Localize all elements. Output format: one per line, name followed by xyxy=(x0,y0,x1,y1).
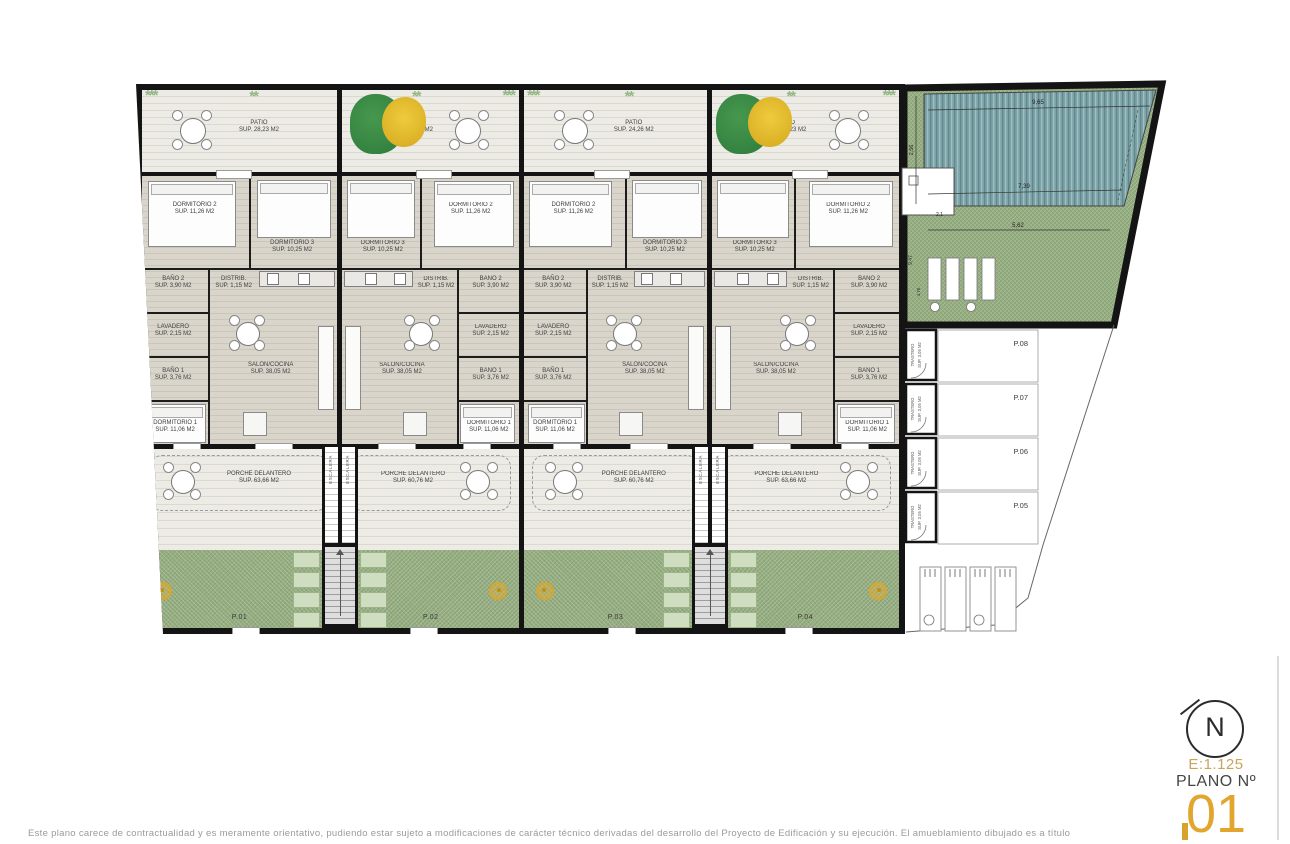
bano1-label: BAÑO 1SUP. 3,76 M2 xyxy=(524,368,583,381)
kitchen-hob-icon xyxy=(737,273,749,285)
dormitorio1-label: DORMITORIO 1SUP. 11,06 M2 xyxy=(524,420,586,433)
parasol-icon xyxy=(931,303,940,312)
lavadero-label: LAVADEROSUP. 2,15 M2 xyxy=(462,324,519,337)
disclaimer-text: Este plano carece de contractualidad y e… xyxy=(28,828,1158,839)
dormitorio1-label: DORMITORIO 1SUP. 11,06 M2 xyxy=(142,420,208,433)
plot-label: P.07 xyxy=(1014,393,1028,402)
rooms-zone: DORMITORIO 2SUP. 11,26 M2 DORMITORIO 3SU… xyxy=(342,176,519,444)
lavadero-label: LAVADEROSUP. 2,15 M2 xyxy=(524,324,583,337)
palm-plant-icon: *** xyxy=(145,91,157,101)
patio-door-opening xyxy=(416,170,452,179)
gate-opening xyxy=(410,627,438,638)
planter-icon xyxy=(293,612,320,628)
wall-segment xyxy=(142,356,208,358)
wall-segment xyxy=(420,176,422,268)
gold-accent-bar xyxy=(1182,823,1188,840)
wall-segment xyxy=(524,356,586,358)
dormitorio3-label: DORMITORIO 3SUP. 10,25 M2 xyxy=(626,240,703,253)
swimming-pool xyxy=(924,90,1156,206)
kitchen-sink-icon xyxy=(267,273,279,285)
salon-label: SALON/COCINASUP. 38,05 M2 xyxy=(590,362,700,375)
dining-table-icon xyxy=(779,314,817,352)
rooms-zone: DORMITORIO 2SUP. 11,26 M2 DORMITORIO 3SU… xyxy=(524,176,707,444)
plot-label: P.06 xyxy=(1014,447,1028,456)
bed-icon xyxy=(347,180,414,238)
dim-label: 5,62 xyxy=(1012,223,1024,229)
bano1-label: BAÑO 1SUP. 3,76 M2 xyxy=(462,368,519,381)
palm-plant-icon: ** xyxy=(625,92,633,102)
gate-opening xyxy=(785,627,813,638)
planter-icon xyxy=(360,572,387,588)
dormitorio2-label: DORMITORIO 2SUP. 11,26 M2 xyxy=(427,202,516,215)
rooms-zone: DORMITORIO 2SUP. 11,26 M2 DORMITORIO 3SU… xyxy=(142,176,337,444)
dormitorio2-label: DORMITORIO 2SUP. 11,26 M2 xyxy=(528,202,620,215)
parking-spaces xyxy=(920,567,1016,631)
unit: *** ** PATIOSUP. 24,26 M2 DORMITORIO 2SU xyxy=(524,90,707,628)
distrib-label: DISTRIB.SUP. 1,15 M2 xyxy=(413,276,459,289)
pool-garden-zone: 9,65 7,39 5,62 2,56 2,1 9,47 4,76 TRASTE… xyxy=(900,80,1180,640)
parasol-icon xyxy=(967,303,976,312)
stairs-icon xyxy=(695,547,725,624)
wall-segment xyxy=(835,312,899,314)
planter-icon xyxy=(663,552,690,568)
planter-icon xyxy=(360,592,387,608)
porche-table-icon xyxy=(459,461,499,501)
dim-label: 9,47 xyxy=(908,255,914,265)
patio-label: PATIOSUP. 24,26 M2 xyxy=(586,120,681,133)
bed-icon xyxy=(257,180,331,238)
dormitorio2-label: DORMITORIO 2SUP. 11,26 M2 xyxy=(802,202,896,215)
porche-table-icon xyxy=(839,461,879,501)
dim-label: 2,56 xyxy=(909,145,915,156)
wall-segment xyxy=(835,400,899,402)
porche-label: PORCHE DELANTEROSUP. 63,66 M2 xyxy=(738,471,835,484)
light-marker-icon xyxy=(869,582,887,600)
trastero-plots xyxy=(906,330,1038,544)
plot-label: P.05 xyxy=(1014,501,1028,510)
distrib-label: DISTRIB.SUP. 1,15 M2 xyxy=(208,276,259,289)
dormitorio2-label: DORMITORIO 2SUP. 11,26 M2 xyxy=(146,202,244,215)
wall-segment xyxy=(794,176,796,268)
distrib-label: DISTRIB.SUP. 1,15 M2 xyxy=(787,276,836,289)
planter-row xyxy=(293,552,320,632)
porche-zone: PORCHE DELANTEROSUP. 60,76 M2 xyxy=(524,449,707,550)
porche-table-icon xyxy=(544,461,584,501)
patio-zone: *** ** PATIOSUP. 28,23 M2 xyxy=(142,90,337,172)
planter-icon xyxy=(730,592,757,608)
stair-corridor: ESCALERA ESCALERA xyxy=(692,444,728,628)
bano1-label: BAÑO 1SUP. 3,76 M2 xyxy=(839,368,899,381)
gate-opening xyxy=(608,627,636,638)
bano1-label: BAÑO 1SUP. 3,76 M2 xyxy=(142,368,204,381)
porche-table-icon xyxy=(162,461,202,501)
palm-plant-icon: ** xyxy=(249,92,257,102)
coffee-table-icon xyxy=(778,412,802,436)
porche-label: PORCHE DELANTEROSUP. 60,76 M2 xyxy=(367,471,459,484)
escalera-shaft: ESCALERA xyxy=(325,447,338,543)
planter-icon xyxy=(360,552,387,568)
porche-label: PORCHE DELANTEROSUP. 60,76 M2 xyxy=(586,471,681,484)
unit: *** ** PATIOSUP. 24,26 M2 DORMITORIO 2SU xyxy=(342,90,519,628)
bed-icon xyxy=(632,180,702,238)
lavadero-label: LAVADEROSUP. 2,15 M2 xyxy=(839,324,899,337)
light-marker-icon xyxy=(489,582,507,600)
unit-id-label: P.01 xyxy=(191,614,289,621)
dormitorio3-label: DORMITORIO 3SUP. 10,25 M2 xyxy=(251,240,333,253)
north-letter: N xyxy=(1188,712,1242,743)
planter-row xyxy=(663,552,690,632)
tree-icon xyxy=(716,90,794,162)
dim-label: 2,1 xyxy=(936,212,943,218)
sheet-border-line xyxy=(1277,656,1279,840)
planter-icon xyxy=(663,592,690,608)
planter-icon xyxy=(293,552,320,568)
wall-segment xyxy=(142,268,337,270)
porche-zone: PORCHE DELANTEROSUP. 60,76 M2 xyxy=(342,449,519,550)
wall-segment xyxy=(625,176,627,268)
planter-icon xyxy=(293,572,320,588)
planter-icon xyxy=(730,552,757,568)
patio-label: PATIOSUP. 28,23 M2 xyxy=(208,120,309,133)
dormitorio3-label: DORMITORIO 3SUP. 10,25 M2 xyxy=(716,240,795,253)
unit-id-label: P.03 xyxy=(570,614,662,621)
dormitorio1-label: DORMITORIO 1SUP. 11,06 M2 xyxy=(459,420,519,433)
porche-zone: PORCHE DELANTEROSUP. 63,66 M2 xyxy=(142,449,337,550)
scale-label: E:1.125 xyxy=(1166,756,1266,773)
trastero-sup-label: SUP. 3,05 M2 xyxy=(917,450,922,476)
dormitorio3-label: DORMITORIO 3SUP. 10,25 M2 xyxy=(346,240,420,253)
stairs-icon xyxy=(325,547,355,624)
wall-segment xyxy=(342,268,519,270)
porche-label: PORCHE DELANTEROSUP. 63,66 M2 xyxy=(208,471,309,484)
wall-segment xyxy=(586,270,588,444)
trastero-label: TRASTERO xyxy=(910,343,915,367)
dining-table-icon xyxy=(228,314,266,352)
escalera-label: ESCALERA xyxy=(715,455,720,484)
wall-segment xyxy=(142,400,208,402)
coffee-table-icon xyxy=(619,412,643,436)
dim-label: 9,65 xyxy=(1032,100,1044,106)
distrib-label: DISTRIB.SUP. 1,15 M2 xyxy=(586,276,634,289)
kitchen-sink-icon xyxy=(394,273,406,285)
wall-segment xyxy=(712,268,899,270)
escalera-label: ESCALERA xyxy=(698,455,703,484)
escalera-shaft: ESCALERA xyxy=(712,447,725,543)
coffee-table-icon xyxy=(403,412,427,436)
bano2-label: BAÑO 2SUP. 3,90 M2 xyxy=(142,276,204,289)
escalera-shaft: ESCALERA xyxy=(342,447,355,543)
escalera-label: ESCALERA xyxy=(328,455,333,484)
kitchen-sink-icon xyxy=(767,273,779,285)
wall-segment xyxy=(459,356,519,358)
north-compass: N xyxy=(1186,700,1244,758)
plano-number: 01 xyxy=(1166,786,1266,842)
pool-house-detail xyxy=(909,176,918,185)
patio-door-opening xyxy=(216,170,252,179)
planter-icon xyxy=(730,612,757,628)
kitchen-hob-icon xyxy=(670,273,682,285)
dim-label: 7,39 xyxy=(1018,184,1030,190)
planter-row xyxy=(360,552,387,632)
trastero-label: TRASTERO xyxy=(910,451,915,475)
planter-icon xyxy=(293,592,320,608)
lavadero-label: LAVADEROSUP. 2,15 M2 xyxy=(142,324,204,337)
sofa-icon xyxy=(688,326,704,410)
bano2-label: BAÑO 2SUP. 3,90 M2 xyxy=(524,276,583,289)
rooms-zone: DORMITORIO 2SUP. 11,26 M2 DORMITORIO 3SU… xyxy=(712,176,899,444)
stair-corridor: ESCALERA ESCALERA xyxy=(322,444,358,628)
patio-door-opening xyxy=(792,170,828,179)
sofa-icon xyxy=(318,326,334,410)
patio-door-opening xyxy=(594,170,630,179)
planter-icon xyxy=(360,612,387,628)
bano2-label: BAÑO 2SUP. 3,90 M2 xyxy=(839,276,899,289)
trastero-sup-label: SUP. 3,05 M2 xyxy=(917,396,922,422)
palm-plant-icon: *** xyxy=(504,91,516,101)
unit-id-label: P.04 xyxy=(759,614,853,621)
bed-icon xyxy=(717,180,788,238)
dim-label: 4,76 xyxy=(916,287,921,296)
plot-label: P.08 xyxy=(1014,339,1028,348)
kitchen-sink-icon xyxy=(641,273,653,285)
palm-plant-icon: *** xyxy=(884,91,896,101)
planter-row xyxy=(730,552,757,632)
porche-zone: PORCHE DELANTEROSUP. 63,66 M2 xyxy=(712,449,899,550)
building-block: *** ** PATIOSUP. 28,23 M2 DORMITORIO 2SU xyxy=(136,84,905,634)
trastero-sup-label: SUP. 3,05 M2 xyxy=(917,504,922,530)
wall-segment xyxy=(142,312,208,314)
sofa-icon xyxy=(345,326,361,410)
light-marker-icon xyxy=(536,582,554,600)
unit: *** ** PATIOSUP. 28,23 M2 DORMITORIO 2SU xyxy=(142,90,337,628)
salon-label: SALON/COCINASUP. 38,05 M2 xyxy=(349,362,455,375)
escalera-shaft: ESCALERA xyxy=(695,447,708,543)
wall-segment xyxy=(524,400,586,402)
unit: *** ** PATIOSUP. 28,23 M2 DORMITORIO 2SU xyxy=(712,90,899,628)
dining-table-icon xyxy=(605,314,643,352)
planter-icon xyxy=(730,572,757,588)
kitchen-hob-icon xyxy=(298,273,310,285)
bano2-label: BAÑO 2SUP. 3,90 M2 xyxy=(462,276,519,289)
wall-segment xyxy=(459,400,519,402)
salon-label: SALON/COCINASUP. 38,05 M2 xyxy=(212,362,329,375)
dining-table-icon xyxy=(403,314,441,352)
trastero-sup-label: SUP. 3,05 M2 xyxy=(917,342,922,368)
planter-icon xyxy=(663,612,690,628)
kitchen-hob-icon xyxy=(365,273,377,285)
escalera-label: ESCALERA xyxy=(345,455,350,484)
trastero-label: TRASTERO xyxy=(910,397,915,421)
patio-zone: *** ** PATIOSUP. 24,26 M2 xyxy=(524,90,707,172)
wall-segment xyxy=(208,270,210,444)
wall-segment xyxy=(249,176,251,268)
sofa-icon xyxy=(715,326,731,410)
dormitorio1-label: DORMITORIO 1SUP. 11,06 M2 xyxy=(835,420,899,433)
unit-id-label: P.02 xyxy=(386,614,475,621)
palm-plant-icon: *** xyxy=(527,91,539,101)
salon-label: SALON/COCINASUP. 38,05 M2 xyxy=(720,362,832,375)
pool-house xyxy=(902,168,954,215)
light-marker-icon xyxy=(154,582,172,600)
wall-segment xyxy=(459,312,519,314)
wall-segment xyxy=(835,356,899,358)
gate-opening xyxy=(232,627,260,638)
coffee-table-icon xyxy=(243,412,267,436)
wall-segment xyxy=(524,312,586,314)
wall-segment xyxy=(524,268,707,270)
planter-icon xyxy=(663,572,690,588)
tree-icon xyxy=(350,90,428,162)
trastero-label: TRASTERO xyxy=(910,505,915,529)
